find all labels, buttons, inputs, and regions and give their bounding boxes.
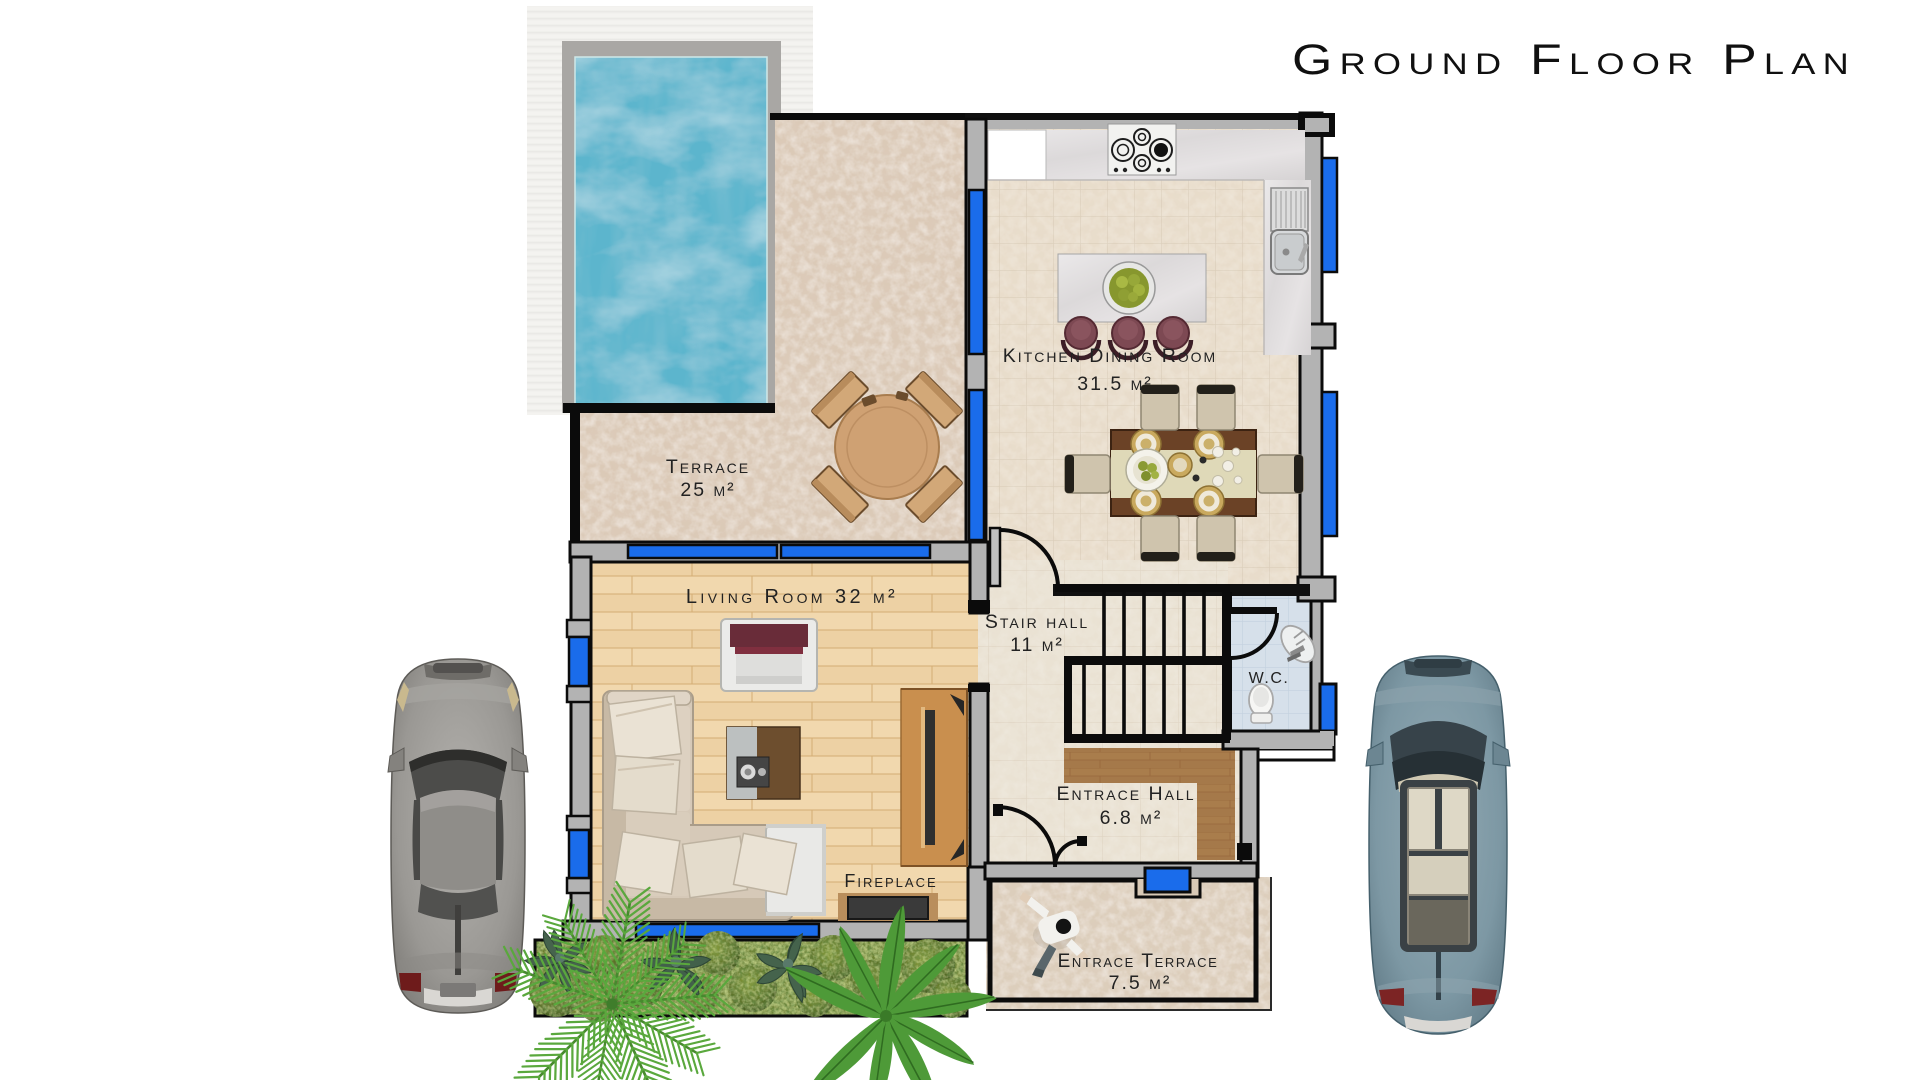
svg-text:31.5 m²: 31.5 m²	[1077, 373, 1153, 395]
svg-text:Living Room 32 m²: Living Room 32 m²	[686, 586, 898, 608]
svg-text:Entrace Terrace: Entrace Terrace	[1058, 951, 1219, 972]
svg-text:Entrace Hall: Entrace Hall	[1057, 783, 1196, 805]
svg-text:Fireplace: Fireplace	[844, 871, 937, 891]
svg-text:7.5 m²: 7.5 m²	[1109, 972, 1172, 994]
svg-text:Terrace: Terrace	[666, 456, 750, 478]
svg-text:6.8 m²: 6.8 m²	[1100, 807, 1163, 829]
svg-text:11 m²: 11 m²	[1010, 634, 1064, 656]
svg-text:25 m²: 25 m²	[680, 479, 735, 501]
svg-text:W.C.: W.C.	[1249, 670, 1290, 687]
svg-text:Stair hall: Stair hall	[985, 611, 1089, 633]
svg-text:Ground Floor Plan: Ground Floor Plan	[1292, 36, 1856, 84]
svg-text:Kitchen Dining Room: Kitchen Dining Room	[1003, 345, 1217, 367]
